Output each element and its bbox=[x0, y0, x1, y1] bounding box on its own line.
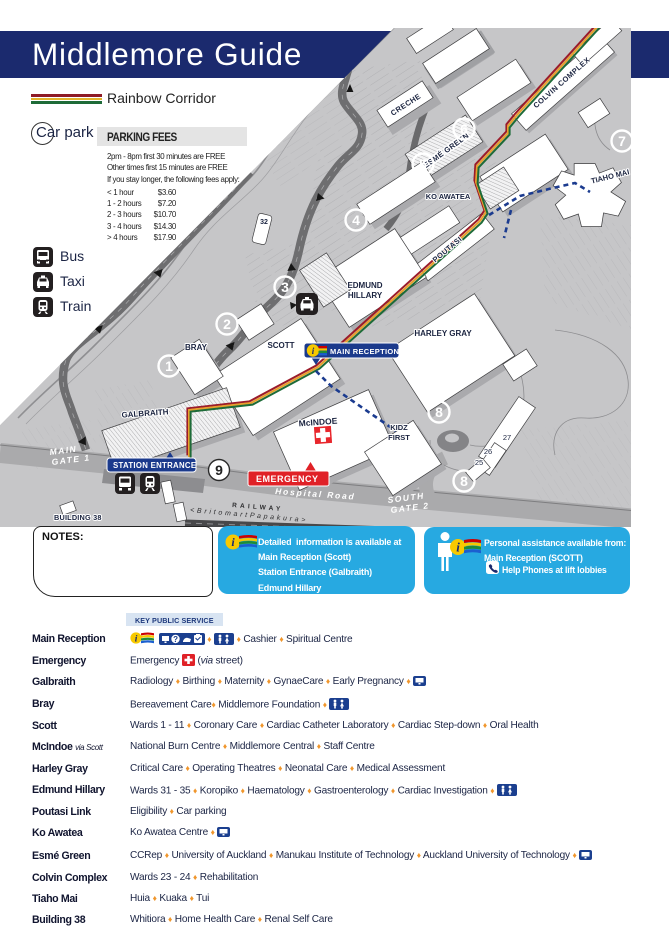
svg-text:6: 6 bbox=[460, 121, 468, 137]
svg-text:32: 32 bbox=[260, 219, 268, 226]
svg-text:EDMUND: EDMUND bbox=[347, 281, 382, 290]
svg-text:7: 7 bbox=[618, 133, 626, 149]
svg-text:25: 25 bbox=[475, 458, 483, 467]
svg-text:KIDZ: KIDZ bbox=[390, 423, 408, 432]
svg-text:BUILDING 38: BUILDING 38 bbox=[54, 513, 102, 522]
svg-text:FIRST: FIRST bbox=[388, 433, 410, 442]
svg-text:27: 27 bbox=[503, 433, 511, 442]
svg-text:4: 4 bbox=[352, 212, 360, 228]
svg-text:EMERGENCY: EMERGENCY bbox=[256, 474, 319, 484]
svg-text:i: i bbox=[456, 540, 460, 555]
svg-text:8: 8 bbox=[460, 473, 468, 489]
svg-text:2: 2 bbox=[223, 316, 231, 332]
svg-text:BRAY: BRAY bbox=[185, 343, 208, 352]
svg-text:3: 3 bbox=[281, 279, 289, 295]
svg-text:KO AWATEA: KO AWATEA bbox=[426, 192, 471, 201]
svg-text:9: 9 bbox=[215, 462, 223, 478]
svg-text:HILLARY: HILLARY bbox=[348, 291, 383, 300]
svg-text:MAIN RECEPTION: MAIN RECEPTION bbox=[330, 347, 399, 356]
svg-text:SCOTT: SCOTT bbox=[267, 341, 294, 350]
svg-text:1: 1 bbox=[165, 358, 173, 374]
svg-text:8: 8 bbox=[435, 404, 443, 420]
svg-text:26: 26 bbox=[484, 447, 492, 456]
svg-text:5: 5 bbox=[419, 156, 427, 172]
svg-text:?: ? bbox=[173, 635, 178, 644]
svg-text:HARLEY GRAY: HARLEY GRAY bbox=[414, 329, 472, 338]
svg-text:STATION ENTRANCE: STATION ENTRANCE bbox=[113, 461, 196, 470]
